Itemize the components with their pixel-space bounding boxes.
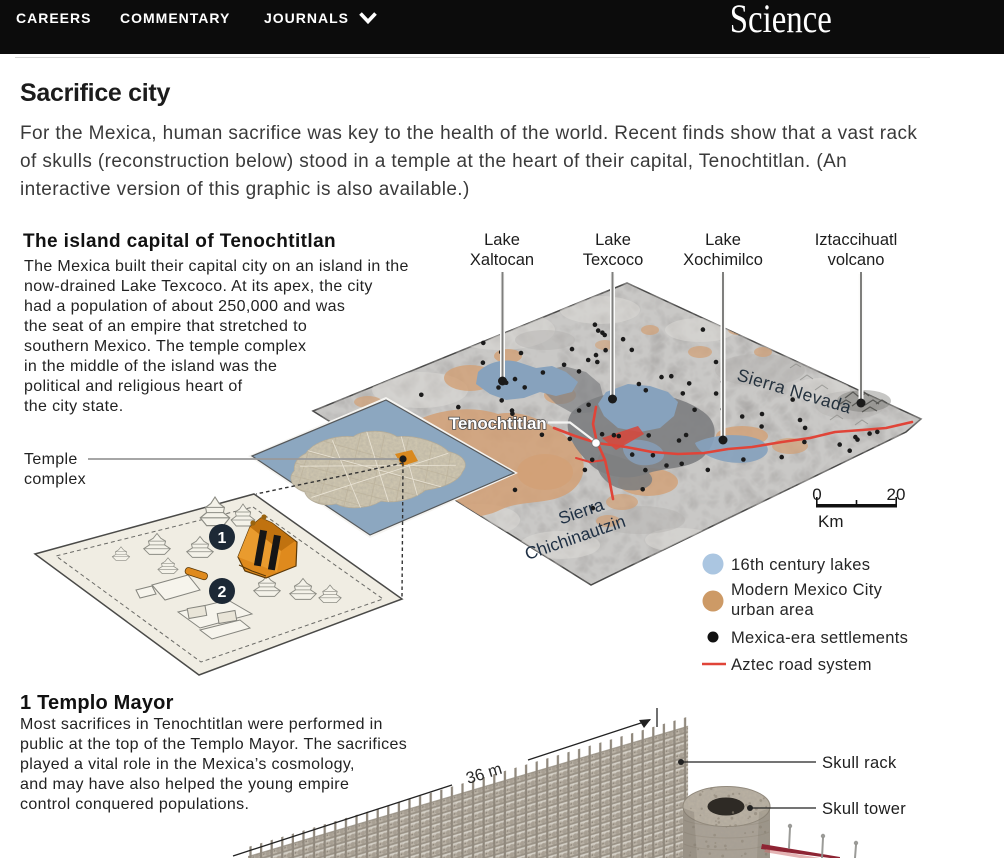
svg-text:the seat of an empire that str: the seat of an empire that stretched to: [24, 318, 307, 335]
svg-text:Aztec road system: Aztec road system: [731, 656, 872, 674]
svg-text:Mexica-era settlements: Mexica-era settlements: [731, 629, 908, 647]
svg-text:Tenochtitlan: Tenochtitlan: [449, 414, 546, 433]
svg-text:16th century lakes: 16th century lakes: [731, 556, 870, 574]
svg-text:Texcoco: Texcoco: [583, 251, 644, 269]
svg-text:2: 2: [218, 584, 227, 601]
svg-text:and may have also helped the y: and may have also helped the young empir…: [20, 776, 349, 793]
svg-text:urban area: urban area: [731, 601, 814, 619]
svg-text:southern Mexico. The temple co: southern Mexico. The temple complex: [24, 338, 306, 355]
svg-text:Lake: Lake: [705, 231, 741, 249]
svg-text:control conquered populations.: control conquered populations.: [20, 796, 249, 813]
svg-text:political and religious heart: political and religious heart of: [24, 378, 243, 395]
svg-text:Xochimilco: Xochimilco: [683, 251, 763, 269]
svg-text:played a vital role in the Mex: played a vital role in the Mexica’s cosm…: [20, 756, 355, 773]
svg-text:now-drained Lake Texcoco. At i: now-drained Lake Texcoco. At its apex, t…: [24, 278, 373, 295]
svg-text:Xaltocan: Xaltocan: [470, 251, 534, 269]
svg-text:in the middle of the island wa: in the middle of the island was the: [24, 358, 277, 375]
svg-text:volcano: volcano: [828, 251, 885, 269]
svg-text:the city state.: the city state.: [24, 398, 124, 415]
svg-text:Skull tower: Skull tower: [822, 800, 906, 818]
svg-text:Temple: Temple: [24, 451, 78, 468]
svg-text:1 Templo Mayor: 1 Templo Mayor: [20, 692, 174, 714]
svg-text:Most sacrifices in Tenochtitla: Most sacrifices in Tenochtitlan were per…: [20, 716, 383, 733]
svg-text:Modern Mexico City: Modern Mexico City: [731, 581, 883, 599]
svg-text:Lake: Lake: [484, 231, 520, 249]
svg-text:Km: Km: [818, 512, 844, 531]
svg-text:Iztaccihuatl: Iztaccihuatl: [815, 231, 898, 249]
svg-text:public at the top of the Templ: public at the top of the Templo Mayor. T…: [20, 736, 407, 753]
svg-text:The Mexica built their capital: The Mexica built their capital city on a…: [24, 258, 409, 275]
svg-text:1: 1: [218, 530, 227, 547]
svg-text:had a population of about 250,: had a population of about 250,000 and wa…: [24, 298, 345, 315]
svg-text:The island capital of Tenochti: The island capital of Tenochtitlan: [23, 231, 336, 252]
svg-text:Lake: Lake: [595, 231, 631, 249]
svg-text:complex: complex: [24, 471, 86, 488]
svg-text:Skull rack: Skull rack: [822, 754, 897, 772]
